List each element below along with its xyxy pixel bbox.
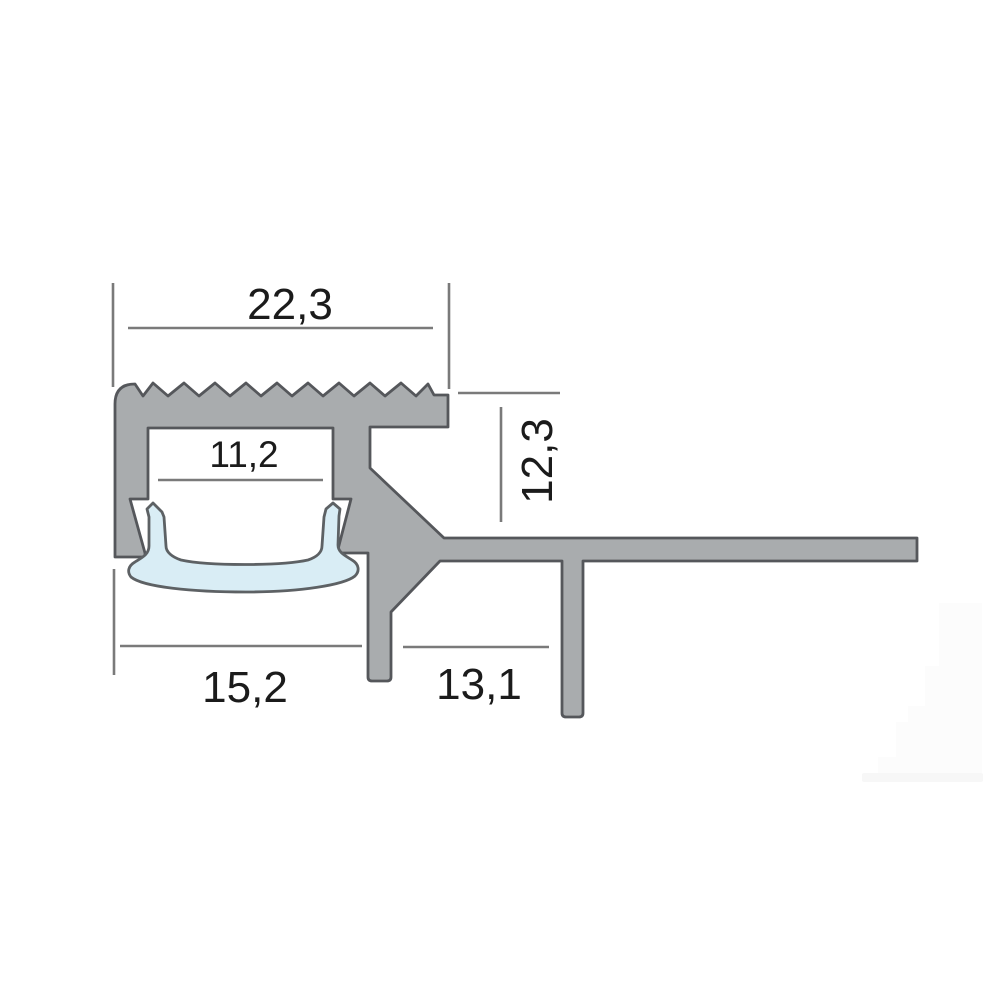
technical-drawing: 22,3 11,2 12,3 15,2 13,1 bbox=[0, 0, 1000, 1000]
watermark-base-bar bbox=[862, 773, 983, 782]
label-inner-channel-width: 11,2 bbox=[209, 434, 278, 475]
diffuser-insert bbox=[129, 503, 358, 592]
label-bottom-left-width: 15,2 bbox=[202, 663, 288, 712]
watermark-staircase bbox=[862, 603, 983, 782]
label-bottom-middle-width: 13,1 bbox=[436, 660, 522, 709]
watermark-stairs-shape bbox=[878, 603, 982, 774]
label-top-width: 22,3 bbox=[247, 280, 333, 329]
label-right-height: 12,3 bbox=[513, 418, 562, 504]
drawing-canvas: 22,3 11,2 12,3 15,2 13,1 bbox=[0, 0, 1000, 1000]
